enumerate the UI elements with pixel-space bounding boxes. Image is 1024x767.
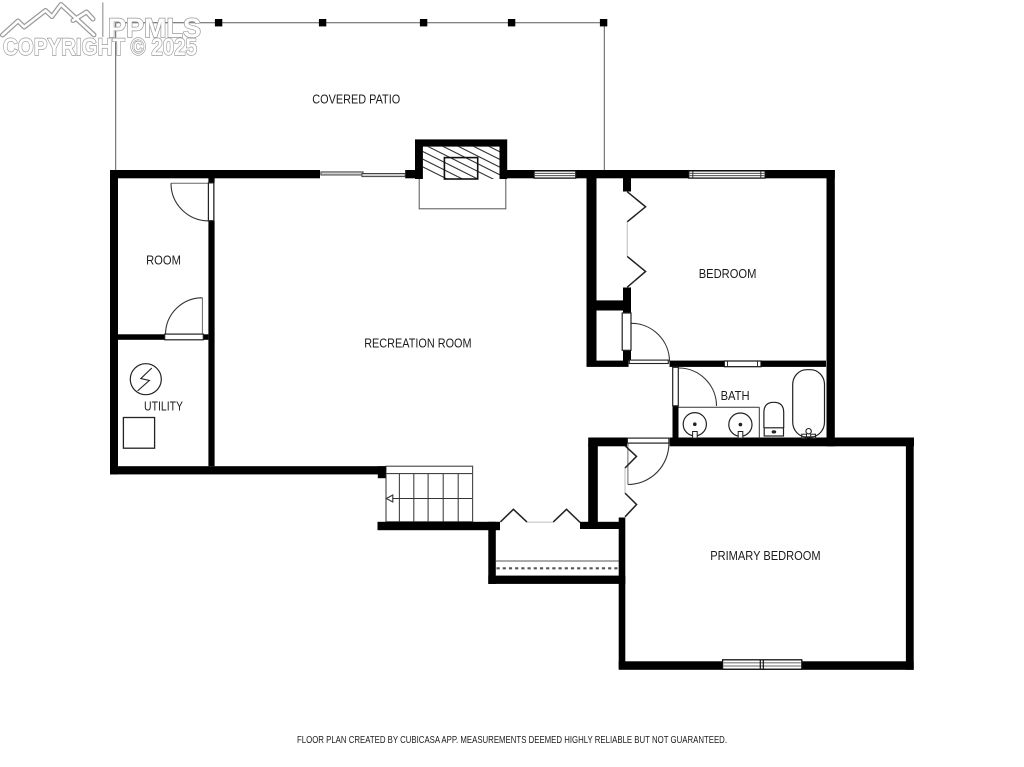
svg-text:FLOOR PLAN CREATED BY CUBICASA: FLOOR PLAN CREATED BY CUBICASA APP. MEAS… [297, 735, 727, 746]
svg-text:ROOM: ROOM [146, 253, 181, 268]
svg-text:RECREATION ROOM: RECREATION ROOM [364, 335, 471, 350]
svg-text:BEDROOM: BEDROOM [699, 266, 757, 281]
svg-text:COVERED PATIO: COVERED PATIO [312, 92, 400, 107]
svg-text:BATH: BATH [721, 388, 750, 403]
svg-text:UTILITY: UTILITY [144, 399, 183, 414]
svg-text:COPYRIGHT © 2025: COPYRIGHT © 2025 [3, 34, 197, 61]
svg-text:PRIMARY BEDROOM: PRIMARY BEDROOM [710, 548, 820, 563]
